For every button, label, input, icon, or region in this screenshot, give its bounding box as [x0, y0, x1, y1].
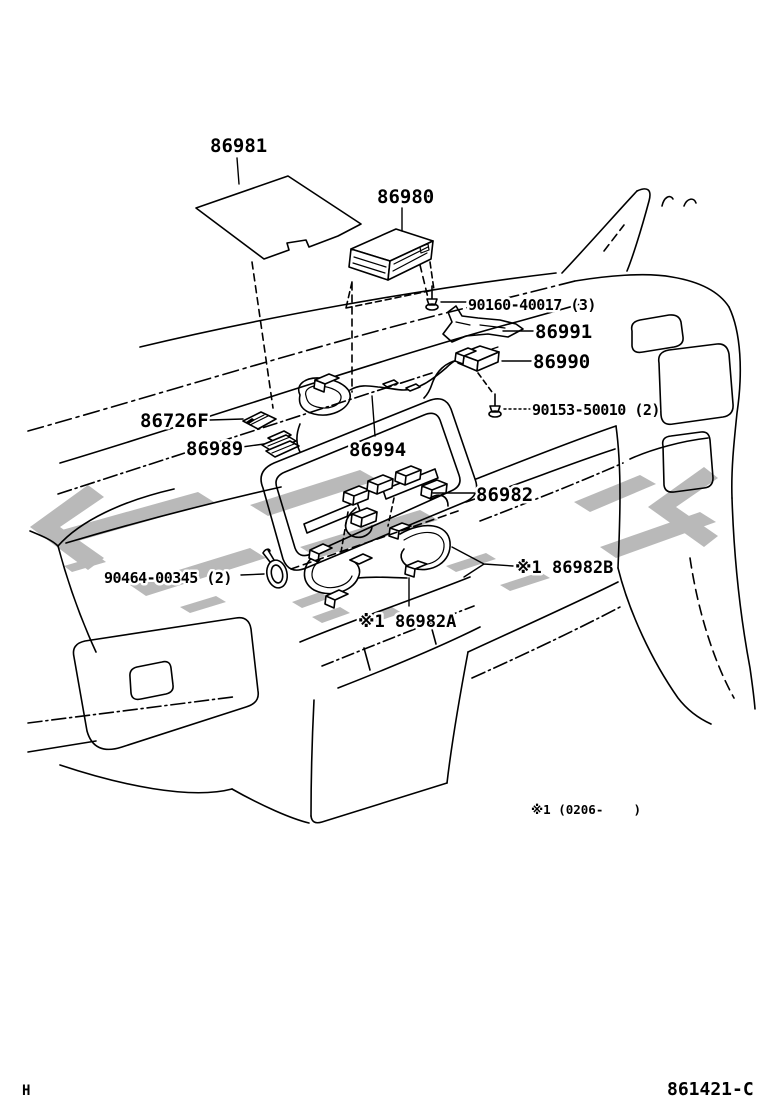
glove-box-panel	[73, 618, 258, 750]
part-label-90153: 90153-50010 (2)	[532, 401, 660, 419]
connector-86726F	[243, 412, 276, 429]
parts-diagram-page: 86981 86980 90160-40017 (3) 86991 86990 …	[0, 0, 760, 1112]
side-vent	[632, 315, 683, 353]
clamp-90464	[264, 558, 289, 590]
applicability-footnote: ※1 (0206- )	[531, 802, 641, 817]
wire-86982B	[389, 523, 450, 577]
dash-face-chain-line	[58, 373, 432, 494]
part-label-86981: 86981	[210, 135, 267, 157]
leader-86994	[372, 396, 375, 436]
part-labels: 86981 86980 90160-40017 (3) 86991 86990 …	[104, 135, 660, 632]
leader-86726F	[210, 419, 243, 420]
part-label-86982B: ※1 86982B	[515, 558, 613, 578]
connector-86989	[262, 431, 299, 457]
part-label-90464: 90464-00345 (2)	[104, 569, 232, 587]
screw-90153	[489, 394, 501, 417]
dashboard-line-art	[28, 189, 755, 823]
leader-86989	[242, 444, 264, 447]
part-label-86989: 86989	[186, 438, 243, 460]
part-label-86980: 86980	[377, 186, 434, 208]
glove-box-handle	[130, 662, 173, 700]
leader-86981	[237, 158, 239, 184]
drawing-number: 861421-C	[667, 1079, 754, 1100]
part-label-86991: 86991	[535, 321, 592, 343]
page-marker: H	[22, 1083, 30, 1099]
diagram-canvas: 86981 86980 90160-40017 (3) 86991 86990 …	[0, 0, 760, 1112]
part-label-90160: 90160-40017 (3)	[468, 296, 596, 314]
part-label-86994: 86994	[349, 439, 406, 461]
a-pillar	[562, 191, 637, 273]
part-label-86982A: ※1 86982A	[358, 612, 456, 632]
part-label-86726F: 86726F	[140, 410, 209, 432]
part-label-86990: 86990	[533, 351, 590, 373]
leader-90464	[241, 574, 264, 575]
trim-panel-86981	[196, 176, 361, 259]
part-label-86982: 86982	[476, 484, 533, 506]
large-vent	[659, 344, 733, 424]
